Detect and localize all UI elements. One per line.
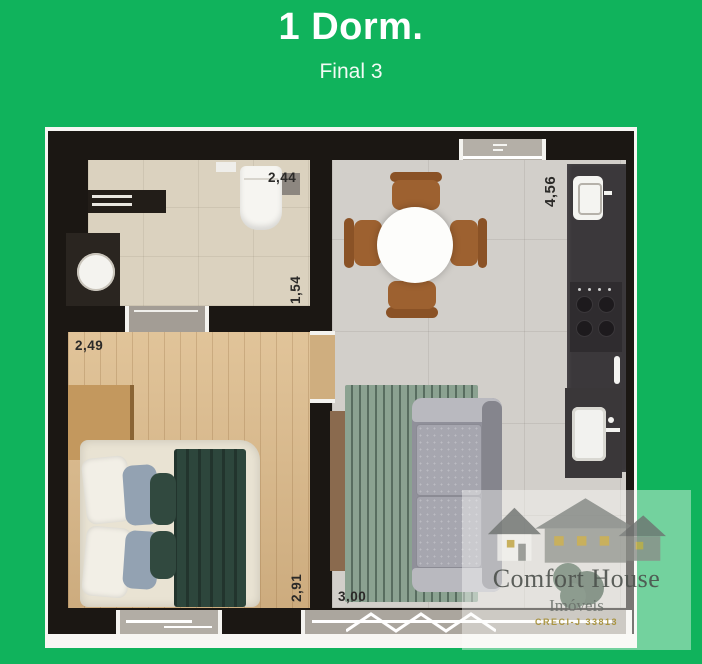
measurement-bedroom-depth: 2,91 — [289, 560, 304, 602]
bathroom-sink — [77, 253, 115, 291]
dining-chair-back — [344, 218, 354, 268]
window-line — [126, 620, 192, 623]
bedroom-window — [120, 610, 218, 634]
measurement-bedroom-width: 2,49 — [75, 338, 103, 353]
window-line — [463, 156, 542, 159]
measurement-living-width: 3,00 — [338, 589, 366, 604]
dining-chair — [388, 281, 436, 309]
watermark-subtitle: Imóveis — [462, 596, 691, 616]
door-jamb — [310, 399, 335, 403]
watermark-brand: Comfort House — [462, 564, 691, 594]
laundry-faucet-knob — [608, 417, 614, 423]
houses-icon — [486, 494, 666, 566]
window-line — [164, 626, 212, 628]
window-jamb — [542, 139, 546, 160]
page-background: 1 Dorm. Final 3 — [0, 0, 702, 664]
bathroom-door-leaf — [134, 310, 198, 312]
laundry-sink — [572, 407, 606, 461]
page-subtitle: Final 3 — [0, 60, 702, 84]
watermark: Comfort House Imóveis CRECI-J 33813 — [462, 490, 691, 650]
dining-chair-back — [478, 218, 487, 268]
bedroom-door — [310, 335, 335, 399]
watermark-registration: CRECI-J 33813 — [462, 617, 691, 627]
shelf-line — [92, 203, 132, 206]
stove-burner — [576, 296, 593, 313]
stove-knob — [588, 288, 591, 291]
measurement-kitchen-living-depth: 4,56 — [542, 161, 559, 207]
bed-pillow-green — [150, 473, 176, 525]
measurement-bathroom-width: 2,44 — [268, 170, 296, 185]
kitchen-window — [463, 139, 542, 160]
stove-burner — [598, 320, 615, 337]
sofa-cushion — [416, 424, 482, 496]
bathroom-niche — [216, 162, 236, 172]
shelf-line — [92, 195, 132, 198]
dining-chair — [450, 220, 478, 266]
bed-pillow-green — [150, 531, 176, 579]
fridge-handle — [614, 356, 620, 384]
glass-mark — [493, 144, 507, 146]
stove-knob — [578, 288, 581, 291]
kitchen-faucet — [604, 191, 612, 195]
door-jamb — [205, 306, 209, 332]
stove-burner — [576, 320, 593, 337]
dining-table — [377, 207, 453, 283]
page-title: 1 Dorm. — [0, 6, 702, 49]
stove-knob — [598, 288, 601, 291]
bed-blanket — [174, 449, 246, 607]
stove-knob — [608, 288, 611, 291]
kitchen-sink-basin — [578, 183, 602, 215]
dining-chair — [392, 180, 440, 210]
window-jamb — [218, 610, 222, 634]
tv-rack — [330, 411, 346, 571]
glass-mark — [493, 149, 503, 151]
laundry-faucet — [606, 428, 620, 432]
measurement-bathroom-depth: 1,54 — [288, 264, 303, 304]
bathroom-shelf — [88, 190, 166, 213]
stove — [570, 282, 622, 352]
stove-burner — [598, 296, 615, 313]
